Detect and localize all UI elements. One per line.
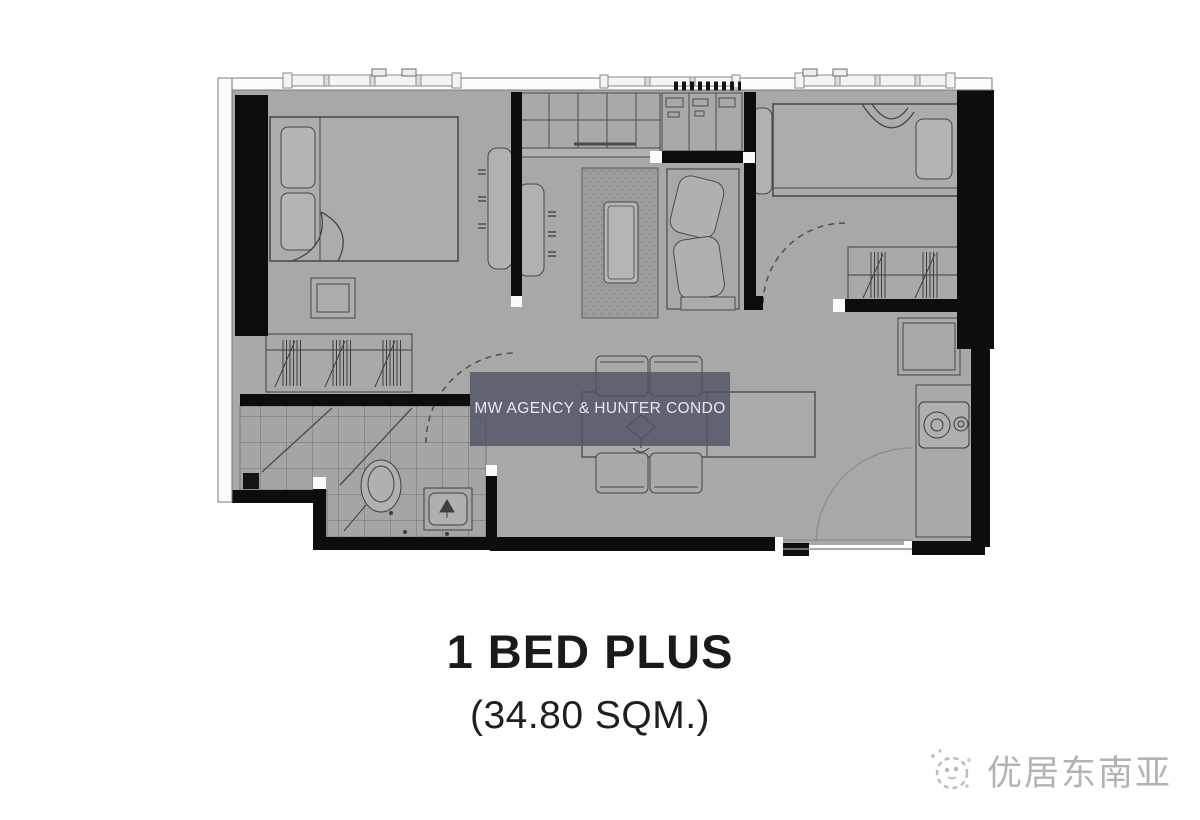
kitchen-upper-cabinet — [662, 93, 742, 151]
bedroom2-wardrobe — [848, 247, 960, 303]
watermark-banner: MW AGENCY & HUNTER CONDO — [470, 372, 730, 446]
living-top-closet — [520, 93, 660, 157]
watermark-text: MW AGENCY & HUNTER CONDO — [474, 400, 725, 418]
bedroom2-single-bed — [773, 104, 958, 196]
stove — [919, 402, 969, 448]
plan-title: 1 BED PLUS — [0, 624, 1180, 679]
nightstand — [311, 278, 355, 318]
pillow — [281, 193, 315, 250]
brand-logo: 优居东南亚 — [925, 742, 1172, 798]
fridge — [898, 318, 960, 375]
coffee-table — [604, 202, 638, 283]
sofa-side-shelf — [681, 297, 735, 310]
bedroom1-double-bed — [270, 117, 458, 261]
floor-plan-page: { "plan": { "title": "1 BED PLUS", "area… — [0, 0, 1200, 820]
bedroom1-wardrobe — [266, 334, 412, 392]
plan-area-label: (34.80 SQM.) — [0, 694, 1180, 738]
brand-name: 优居东南亚 — [987, 745, 1172, 796]
pillow — [281, 127, 315, 188]
floor-drain — [243, 473, 259, 489]
panda-sketch-icon — [925, 744, 977, 796]
pillow — [916, 119, 952, 179]
